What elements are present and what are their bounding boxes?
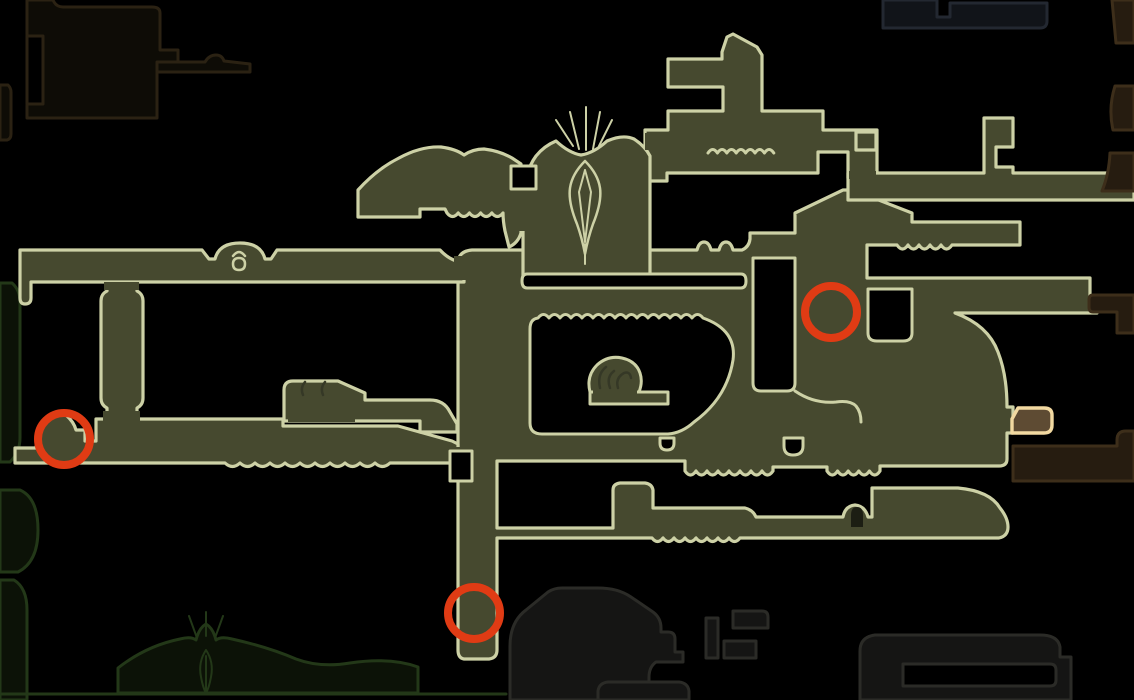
room-small-square — [856, 132, 876, 150]
stub-left-edge-bottom — [0, 580, 27, 700]
stub-left-edge-lower — [0, 490, 38, 572]
room-unexplored-right-edge-upper — [1111, 86, 1134, 130]
stub-left-edge-middle — [0, 283, 20, 462]
green-temple-spike-1 — [189, 616, 197, 638]
seam-patch-pillar-bottom — [103, 411, 140, 421]
slot-bottomright — [903, 664, 1056, 686]
room-top-tower — [620, 34, 877, 181]
seam-patch-pillar-top — [104, 282, 139, 290]
pillar-left — [101, 284, 143, 420]
temple-spike-4 — [593, 112, 600, 149]
seam-patch-tower-corridor — [849, 171, 876, 179]
corridor-upper-right — [848, 118, 1134, 200]
stub-left-edge-upper — [0, 85, 11, 140]
map-rooms-layer — [0, 0, 1134, 700]
seam-patch-temple-band — [645, 133, 653, 150]
room-unexplored-gray-block-a — [733, 611, 768, 628]
corridor-unexplored-bottomright — [1013, 431, 1134, 481]
room-unexplored-bottom-temple — [118, 624, 418, 693]
green-temple-spike-3 — [215, 616, 223, 638]
gap-shaft-jog — [450, 451, 472, 481]
gap-slot-u — [784, 438, 803, 455]
gap-right-shaft — [868, 289, 912, 341]
seam-patch-corridor-shaft — [454, 256, 470, 280]
seam-patch-spiral — [593, 388, 637, 396]
window-unexplored-topleft — [27, 36, 43, 104]
room-unexplored-topright-corner — [1112, 0, 1134, 43]
room-unexplored-topright-slate — [883, 0, 1047, 28]
room-unexplored-gray-block-c — [724, 641, 756, 658]
room-unexplored-topleft — [27, 0, 178, 118]
window-wing-temple — [511, 166, 536, 189]
room-special-orange — [1012, 408, 1052, 433]
room-small-glyphs — [284, 381, 457, 432]
room-temple — [523, 137, 650, 278]
map-canvas[interactable] — [0, 0, 1134, 700]
room-wing — [358, 147, 521, 247]
room-unexplored-gray-small — [598, 682, 689, 700]
gap-inlet-shaft — [753, 258, 795, 391]
room-unexplored-right-block-mid — [1102, 153, 1134, 191]
door-arch-dark — [851, 507, 863, 527]
gap-slot-small — [660, 438, 674, 450]
map-root — [0, 0, 1134, 700]
room-unexplored-gray-block-b — [706, 618, 718, 658]
gap-under-temple — [522, 274, 746, 288]
seam-patch-glyphroom — [288, 414, 355, 422]
